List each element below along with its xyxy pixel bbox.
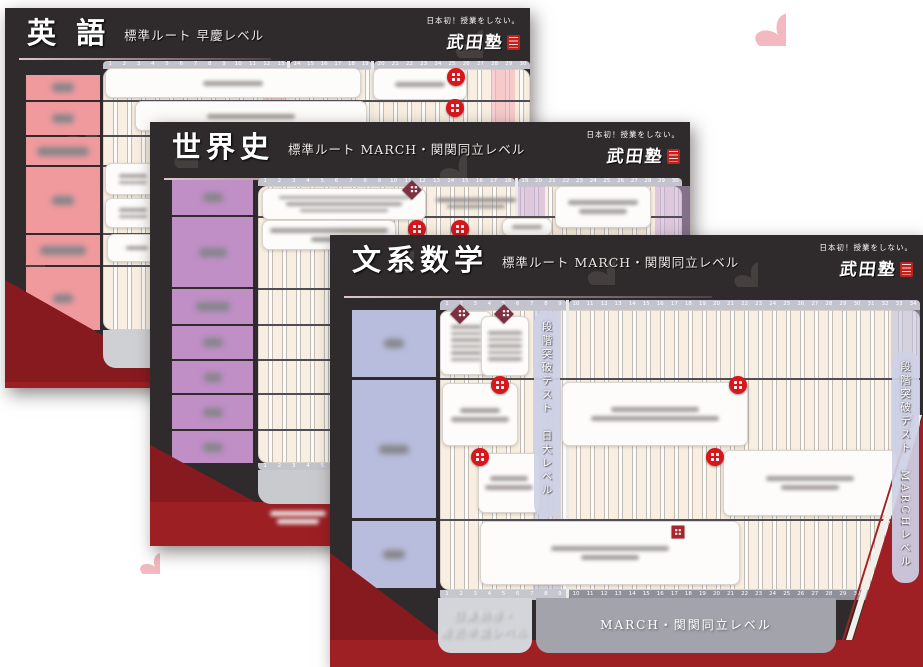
card-header: 世界史 標準ルート MARCH・関関同立レベル [172,132,525,164]
schedule-item-box [723,450,897,516]
week-number: 21 [545,179,559,185]
blurred-label-text [203,408,223,417]
blurred-label-text [383,550,405,559]
date-circle-badge [706,448,724,466]
subject-row-label [26,137,100,165]
title-underline [19,58,271,60]
subject-row-label [26,75,100,100]
week-number: 8 [203,62,217,68]
week-number: 25 [780,302,794,308]
week-number: 27 [808,592,822,598]
card-header: 英 語 標準ルート 早慶レベル [27,18,264,50]
week-number: 15 [458,179,472,185]
blurred-text-line [451,345,481,349]
blurred-text-line [488,351,522,355]
week-number: 15 [304,62,318,68]
week-number: 1 [440,592,454,598]
week-number: 1 [440,302,454,308]
date-square-badge [672,526,685,539]
week-number: 1 [258,464,272,470]
brand-name: 武田塾 [838,255,898,280]
badge-glyphs [451,104,454,107]
week-number: 17 [667,592,681,598]
brand-tagline: 日本初！授業をしない。 [587,129,681,140]
blurred-text-line [579,209,627,214]
week-number: 34 [906,592,920,598]
week-number: 13 [611,592,625,598]
blurred-text-line [551,546,669,551]
subject-row-label [172,361,253,393]
red-seal-icon [507,35,520,50]
card-title: 世界史 [172,132,274,164]
week-number: 10 [569,592,583,598]
badge-glyphs [503,310,505,312]
row-divider [440,378,920,380]
badge-glyphs [413,225,416,228]
blurred-text-line [126,246,148,250]
week-number: 11 [583,592,597,598]
blurred-label-text [379,445,409,454]
week-number: 2 [272,179,286,185]
blurred-text-line [488,357,522,361]
footer-level-label: MARCH・関関同立レベル [600,618,772,634]
blurred-label-text [204,373,222,382]
week-number: 5 [315,179,329,185]
brand-tagline: 日本初！授業をしない。 [820,242,914,253]
week-number: 27 [808,302,822,308]
blurred-text-line [591,416,719,421]
blurred-label-text [203,338,223,347]
week-number: 30 [516,62,530,68]
blurred-text-line [270,511,326,516]
card-liberal-arts-math-roadmap[interactable]: 文系数学 標準ルート MARCH・関関同立レベル 日本初！授業をしない。 武田塾… [330,235,923,667]
week-number: 25 [780,592,794,598]
week-number: 32 [878,592,892,598]
week-number: 1 [103,62,117,68]
week-number: 28 [488,62,502,68]
week-number-strip: 192021222324252627282930 [518,178,682,186]
week-number: 22 [559,179,573,185]
date-circle-badge [447,68,465,86]
week-number: 20 [374,62,388,68]
blurred-text-line [395,82,445,87]
blurred-label-text [384,339,404,348]
week-number: 30 [850,302,864,308]
blurred-text-line [581,555,639,560]
week-number: 13 [429,179,443,185]
schedule-item-box [480,521,740,585]
week-number: 26 [614,179,628,185]
week-number: 3 [287,179,301,185]
week-number: 26 [794,302,808,308]
blurred-text-line [488,338,522,342]
week-number: 24 [766,592,780,598]
subject-row-label [352,380,436,518]
week-number: 29 [836,592,850,598]
week-number: 29 [655,179,669,185]
week-number: 22 [738,302,752,308]
blurred-label-text [37,147,89,156]
blurred-text-line [488,331,522,335]
brand-tagline: 日本初！授業をしない。 [427,15,521,26]
week-number: 20 [709,592,723,598]
week-number: 30 [668,179,682,185]
subject-row-label [172,395,253,429]
blurred-label-text [52,114,74,123]
week-number: 26 [794,592,808,598]
week-number: 14 [290,62,304,68]
week-number: 28 [822,592,836,598]
week-number: 29 [502,62,516,68]
blurred-text-line [207,114,295,119]
week-number: 34 [906,302,920,308]
week-number: 9 [553,302,567,308]
week-number: 25 [445,62,459,68]
subject-row-label [172,180,253,215]
week-number: 19 [518,179,532,185]
sakura-flower-icon [718,0,786,46]
week-number: 9 [217,62,231,68]
blurred-text-line [451,417,509,422]
badge-glyphs [711,453,714,456]
week-number: 15 [639,592,653,598]
week-number: 21 [388,62,402,68]
week-number: 29 [836,302,850,308]
blurred-text-line [119,215,147,219]
date-circle-badge [729,376,747,394]
week-number: 16 [653,592,667,598]
date-circle-badge [471,448,489,466]
badge-glyphs [459,310,461,312]
blurred-text-line [119,181,147,185]
week-number: 17 [487,179,501,185]
blurred-label-text [53,294,73,303]
date-circle-badge [446,99,464,117]
week-number: 27 [627,179,641,185]
week-number: 17 [331,62,345,68]
week-number: 18 [501,179,515,185]
badge-glyphs [734,381,737,384]
week-number: 24 [586,179,600,185]
week-number: 16 [472,179,486,185]
week-number: 3 [131,62,145,68]
week-number: 24 [766,302,780,308]
week-number: 10 [231,62,245,68]
takeda-juku-logo: 日本初！授業をしない。 武田塾 [820,242,914,280]
blurred-label-text [40,246,86,255]
week-number: 5 [160,62,174,68]
week-number: 4 [482,592,496,598]
week-number-strip: 123456789101112131415161718 [258,178,515,186]
week-number: 12 [415,179,429,185]
subject-row-label [172,217,253,287]
badge-glyphs [476,453,479,456]
week-number: 6 [174,62,188,68]
week-number: 27 [473,62,487,68]
subject-row-label [26,167,100,233]
blurred-text-line [286,202,402,206]
brand-name: 武田塾 [445,28,505,53]
week-number: 2 [117,62,131,68]
schedule-item-box [481,316,529,376]
week-number: 3 [468,592,482,598]
week-number: 14 [625,302,639,308]
blurred-text-line [451,325,481,329]
stage-test-strip: 段階突破テストMARCHレベル [892,351,919,583]
week-number: 3 [287,464,301,470]
blurred-label-text [203,443,223,452]
week-number: 23 [752,592,766,598]
week-number: 21 [724,302,738,308]
footer-level-label-blurred: 日東駒専・ [454,610,517,624]
week-number: 6 [329,179,343,185]
brand-name: 武田塾 [605,142,665,167]
schedule-item-box [502,218,552,236]
footer-level-bar: 日東駒専・産近甲龍レベル [438,598,532,653]
subject-row-label [352,310,436,377]
week-number: 14 [625,592,639,598]
week-number: 14 [444,179,458,185]
blurred-text-line [451,332,481,336]
week-number: 16 [317,62,331,68]
title-underline [344,296,712,298]
stage-test-label: 段階突破テスト [898,361,913,456]
week-number: 33 [892,302,906,308]
week-number: 28 [822,302,836,308]
blurred-text-line [512,225,542,229]
blurred-text-line [451,338,481,342]
week-number: 32 [878,302,892,308]
week-number: 2 [272,464,286,470]
takeda-juku-logo: 日本初！授業をしない。 武田塾 [427,15,521,53]
week-number: 13 [274,62,288,68]
subject-row-label [26,235,100,265]
week-number: 7 [525,302,539,308]
card-title: 文系数学 [352,245,488,277]
week-number: 23 [752,302,766,308]
card-title: 英 語 [27,18,110,50]
week-number: 20 [532,179,546,185]
week-number: 4 [301,464,315,470]
blurred-label-text [52,196,74,205]
red-seal-icon [667,149,680,164]
week-number: 21 [724,592,738,598]
footer-level-bar [258,506,338,528]
footer-level-label-blurred: 産近甲龍レベル [441,627,529,641]
week-number: 9 [372,179,386,185]
schedule-item-box [105,68,361,98]
week-number: 10 [569,302,583,308]
week-number: 5 [315,464,329,470]
blurred-text-line [490,476,528,481]
badge-glyphs [411,186,413,188]
week-number: 12 [260,62,274,68]
subject-row-label [172,289,253,324]
blurred-text-line [300,209,388,213]
week-number: 22 [402,62,416,68]
week-number: 1 [258,179,272,185]
blurred-text-line [460,408,500,413]
subject-row-label [172,326,253,359]
week-number: 4 [146,62,160,68]
card-subtitle: 標準ルート 早慶レベル [124,25,264,50]
stage-test-label: MARCHレベル [898,470,913,569]
badge-glyphs [496,381,499,384]
week-number: 19 [695,592,709,598]
week-number: 20 [709,302,723,308]
red-seal-icon [900,262,913,277]
blurred-text-line [436,198,516,202]
date-circle-badge [491,376,509,394]
badge-glyphs [456,225,459,228]
blurred-label-text [203,193,223,202]
week-number-strip: 1011121314151617181920212223242526272829… [569,300,920,310]
week-number: 8 [539,302,553,308]
week-number: 8 [539,592,553,598]
week-number: 31 [864,302,878,308]
week-number: 9 [553,592,567,598]
week-number: 12 [597,302,611,308]
blurred-text-line [451,351,481,355]
blurred-label-text [196,302,230,311]
week-number: 31 [864,592,878,598]
week-number: 5 [496,592,510,598]
week-number: 23 [573,179,587,185]
blurred-text-line [279,196,409,200]
blurred-text-line [447,205,505,209]
week-number: 18 [681,592,695,598]
week-number: 4 [301,179,315,185]
schedule-item-box [442,383,518,446]
week-number: 13 [611,302,625,308]
schedule-item-box [555,186,651,228]
week-number: 7 [525,592,539,598]
schedule-item-box [430,192,522,214]
week-number: 17 [667,302,681,308]
week-number: 7 [188,62,202,68]
blurred-text-line [766,476,854,481]
week-number: 6 [511,302,525,308]
badge-glyphs [675,529,677,531]
week-number: 10 [387,179,401,185]
week-number: 18 [345,62,359,68]
blurred-text-line [485,485,533,490]
card-subtitle: 標準ルート MARCH・関関同立レベル [502,252,739,277]
week-number: 6 [511,592,525,598]
blurred-label-text [52,83,74,92]
week-number: 23 [417,62,431,68]
blurred-text-line [781,485,839,490]
blurred-label-text [199,248,227,257]
blurred-text-line [568,200,638,205]
blurred-text-line [119,174,147,178]
week-number: 11 [583,302,597,308]
week-number: 30 [850,592,864,598]
week-number: 28 [641,179,655,185]
week-number: 4 [482,302,496,308]
takeda-juku-logo: 日本初！授業をしない。 武田塾 [587,129,681,167]
week-number: 8 [358,179,372,185]
week-number: 22 [738,592,752,598]
week-number: 3 [468,302,482,308]
schedule-item-box [562,382,748,446]
week-number: 16 [653,302,667,308]
footer-level-bar: MARCH・関関同立レベル [536,598,836,653]
week-number: 12 [597,592,611,598]
blurred-text-line [451,358,481,362]
subject-row-label [26,267,100,330]
blurred-text-line [119,208,147,212]
subject-row-label [172,431,253,463]
week-number: 7 [344,179,358,185]
schedule-item-box [262,188,426,220]
blurred-text-line [270,228,388,233]
week-number: 33 [892,592,906,598]
stage-test-label: 日大レベル [540,430,555,498]
card-header: 文系数学 標準ルート MARCH・関関同立レベル [352,245,739,277]
week-number: 15 [639,302,653,308]
week-number: 18 [681,302,695,308]
stage-test-label: 段階突破テスト [540,321,555,416]
week-number: 2 [454,592,468,598]
blurred-text-line [277,519,319,524]
card-subtitle: 標準ルート MARCH・関関同立レベル [288,139,525,164]
week-number: 25 [600,179,614,185]
stage-test-strip: 段階突破テスト日大レベル [534,311,560,517]
subject-row-label [352,521,436,588]
subject-row-label [26,102,100,135]
badge-glyphs [452,73,455,76]
blurred-text-line [611,407,699,412]
roadmap-poster-collage: 英 語 標準ルート 早慶レベル 日本初！授業をしない。 武田塾 12345678… [0,0,923,667]
week-number: 19 [695,302,709,308]
week-number: 19 [358,62,372,68]
blurred-text-line [203,81,263,86]
week-number: 26 [459,62,473,68]
blurred-text-line [488,344,522,348]
week-number: 11 [245,62,259,68]
week-number: 24 [431,62,445,68]
